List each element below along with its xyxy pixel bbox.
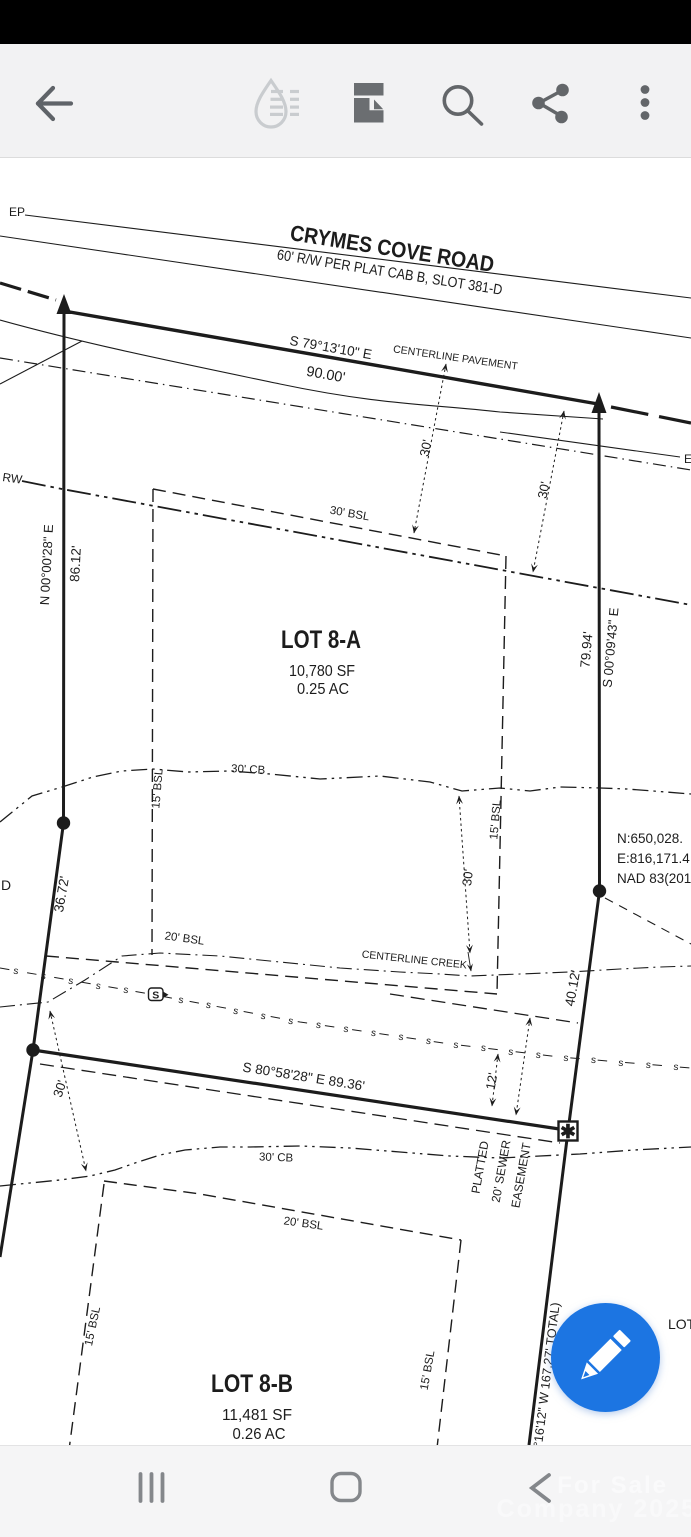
svg-text:20' BSL: 20' BSL [164,930,206,948]
svg-text:LOT 8-B: LOT 8-B [211,1370,293,1398]
svg-text:30' CB: 30' CB [231,763,266,777]
svg-text:CENTERLINE CREEK: CENTERLINE CREEK [361,949,467,972]
svg-text:s: s [67,976,74,988]
svg-text:N 00°00'28" E: N 00°00'28" E [37,524,56,606]
svg-text:s: s [122,985,129,997]
svg-text:s: s [287,1016,294,1028]
svg-text:36.72': 36.72' [51,875,72,913]
svg-text:NAD 83(201: NAD 83(201 [617,871,691,886]
svg-text:15' BSL: 15' BSL [419,1349,438,1391]
svg-text:s: s [480,1043,486,1055]
svg-text:s: s [370,1028,376,1040]
svg-text:90.00': 90.00' [305,364,346,387]
svg-text:EP: EP [9,205,25,219]
svg-text:s: s [563,1053,569,1064]
svg-text:s: s [425,1036,431,1048]
svg-text:PLATTED: PLATTED [469,1140,492,1195]
svg-text:LOT 8-A: LOT 8-A [281,626,361,654]
svg-text:s: s [590,1055,596,1066]
svg-text:EASEMENT: EASEMENT [508,1141,533,1209]
svg-text:s: s [618,1058,624,1069]
svg-text:79.94': 79.94' [577,631,595,669]
svg-text:s: s [315,1020,321,1032]
svg-text:RW: RW [2,470,24,487]
svg-text:0.25 AC: 0.25 AC [297,681,349,698]
svg-text:S: S [152,990,159,1002]
svg-text:s: s [12,966,19,978]
svg-text:CENTERLINE PAVEMENT: CENTERLINE PAVEMENT [392,343,519,372]
svg-text:30': 30' [416,438,434,458]
svg-text:LOT: LOT [668,1316,691,1332]
svg-text:E: E [684,452,691,466]
svg-text:10,780 SF: 10,780 SF [289,663,355,680]
svg-text:D: D [1,877,11,893]
svg-text:30' BSL: 30' BSL [329,505,371,524]
svg-text:✱: ✱ [560,1122,576,1143]
svg-text:30' CB: 30' CB [259,1151,294,1164]
svg-text:30': 30' [459,868,476,887]
svg-text:s: s [40,971,47,983]
svg-text:s: s [673,1062,679,1073]
svg-text:30': 30' [534,480,552,500]
svg-text:S 00°09'43" E: S 00°09'43" E [600,607,622,689]
svg-text:s: s [177,995,184,1007]
svg-text:30': 30' [50,1078,70,1099]
svg-text:20' BSL: 20' BSL [283,1215,325,1233]
svg-text:s: s [205,1000,212,1012]
svg-text:0.26 AC: 0.26 AC [233,1426,286,1443]
svg-text:40.12': 40.12' [562,969,583,1007]
svg-text:s: s [95,981,102,993]
svg-text:E:816,171.4: E:816,171.4 [617,851,690,866]
svg-text:s: s [232,1006,239,1018]
svg-text:s: s [398,1032,404,1044]
svg-text:s: s [508,1047,514,1059]
svg-text:s: s [343,1024,349,1036]
svg-text:s: s [535,1050,541,1062]
svg-text:12': 12' [483,1072,501,1091]
svg-text:15' BSL: 15' BSL [83,1305,103,1347]
svg-text:s: s [260,1011,267,1023]
svg-text:s: s [453,1040,459,1052]
svg-text:S 80°58'28" E 89.36': S 80°58'28" E 89.36' [242,1059,366,1093]
svg-text:N:650,028.: N:650,028. [617,831,683,846]
svg-text:15' BSL: 15' BSL [488,799,503,840]
svg-text:11,481 SF: 11,481 SF [222,1407,292,1424]
svg-text:s: s [645,1060,651,1071]
svg-text:86.12': 86.12' [67,545,84,582]
svg-text:15' BSL: 15' BSL [150,768,165,809]
